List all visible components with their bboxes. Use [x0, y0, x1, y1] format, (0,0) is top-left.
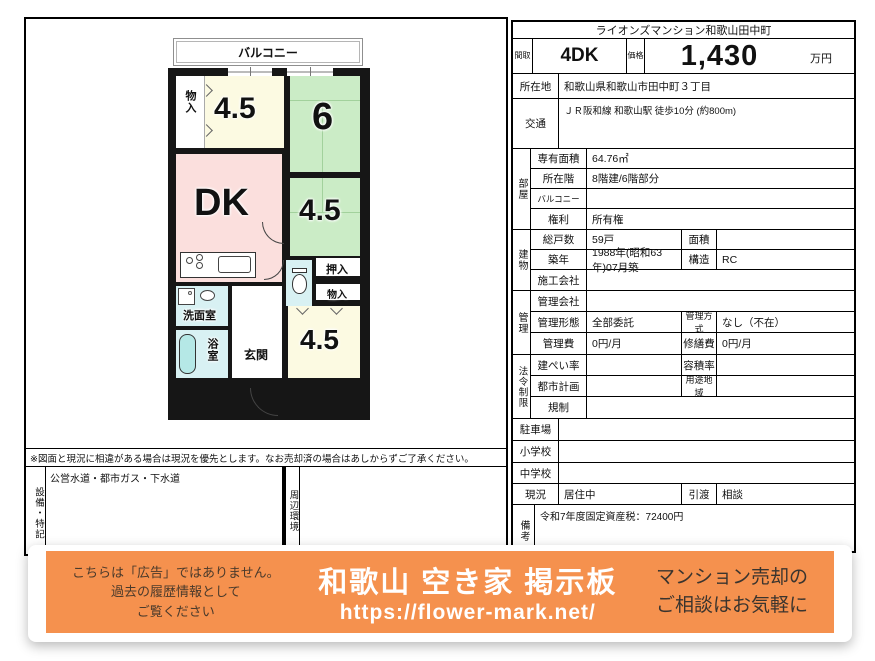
washer-icon: [178, 288, 195, 305]
balcony-row-label: バルコニー: [531, 189, 587, 208]
rights-value: 所有権: [587, 209, 854, 229]
banner-disclaimer: こちらは「広告」ではありません。 過去の履歴情報として ご覧ください: [72, 563, 280, 622]
houshiki-label: 管理方式: [681, 312, 717, 332]
houshiki-value: なし（不在）: [717, 312, 854, 332]
fee-label: 管理費: [531, 333, 587, 354]
room-dk-label: DK: [194, 182, 249, 225]
banner-card: こちらは「広告」ではありません。 過去の履歴情報として ご覧ください 和歌山 空…: [28, 545, 852, 642]
cta-line: マンション売却の: [656, 564, 808, 593]
price-cell: 1,430 万円: [645, 39, 854, 73]
status-row: 現況 居住中 引渡 相談: [513, 484, 854, 505]
legal-section: 法令制限 建ぺい率 容積率 都市計画 用途地域 規制: [513, 355, 854, 419]
toshikeikaku-value: [587, 376, 681, 396]
price-label: 価格: [627, 39, 645, 73]
mgmt-company-value: [587, 291, 854, 311]
built-label: 築年: [531, 250, 587, 269]
management-section-label: 管理: [513, 291, 531, 354]
location-value: 和歌山県和歌山市田中町３丁目: [559, 74, 854, 98]
parking-row: 駐車場: [513, 419, 854, 441]
shuzen-label: 修繕費: [681, 333, 717, 354]
toshikeikaku-label: 都市計画: [531, 376, 587, 396]
yoto-value: [717, 376, 854, 396]
floor-label: 所在階: [531, 169, 587, 188]
area-label: 専有面積: [531, 149, 587, 168]
fee-value: 0円/月: [587, 333, 681, 354]
price-value: 1,430: [681, 40, 759, 73]
menseki-label: 面積: [681, 230, 717, 249]
madori-value: 4DK: [533, 39, 627, 73]
access-label: 交通: [513, 99, 559, 148]
site-title: 和歌山 空き家 掲示板: [318, 559, 617, 601]
units-label: 総戸数: [531, 230, 587, 249]
junior-high-label: 中学校: [513, 463, 559, 483]
hikiwatashi-value: 相談: [717, 484, 854, 504]
parking-value: [559, 419, 854, 440]
stove-icon: [196, 262, 203, 269]
kenpei-label: 建ぺい率: [531, 355, 587, 375]
bathtub-icon: [179, 334, 196, 374]
banner-site: 和歌山 空き家 掲示板 https://flower-mark.net/: [318, 559, 617, 625]
property-details-table: ライオンズマンション和歌山田中町 間取 4DK 価格 1,430 万円 所在地 …: [511, 20, 856, 553]
area-value: 64.76㎡: [587, 149, 854, 168]
keitai-label: 管理形態: [531, 312, 587, 332]
entrance-label: 玄関: [244, 346, 268, 363]
yoseki-value: [717, 355, 854, 375]
banner: こちらは「広告」ではありません。 過去の履歴情報として ご覧ください 和歌山 空…: [46, 551, 834, 633]
note-text: ※図面と現況に相違がある場合は現況を優先とします。なお売却済の場合はあしからずご…: [30, 451, 474, 465]
location-row: 所在地 和歌山県和歌山市田中町３丁目: [513, 74, 854, 99]
sink-icon: [218, 256, 251, 273]
disclaimer-note: ※図面と現況に相違がある場合は現況を優先とします。なお売却済の場合はあしからずご…: [26, 448, 506, 467]
toilet-icon: [292, 274, 307, 294]
room-45-bottom-label: 4.5: [300, 324, 339, 356]
location-label: 所在地: [513, 74, 559, 98]
elementary-value: [559, 441, 854, 462]
price-unit: 万円: [810, 50, 832, 66]
floorplan-panel: バルコニー: [24, 17, 508, 556]
madori-price-row: 間取 4DK 価格 1,430 万円: [513, 39, 854, 74]
storage-mid-label: 物入: [327, 286, 347, 301]
equipment-label: 設備・特記: [26, 467, 46, 554]
yoseki-label: 容積率: [681, 355, 717, 375]
cta-line: ご相談はお気軽に: [656, 592, 808, 621]
elementary-row: 小学校: [513, 441, 854, 463]
kenpei-value: [587, 355, 681, 375]
disclaimer-line: 過去の履歴情報として: [72, 582, 280, 602]
elementary-label: 小学校: [513, 441, 559, 462]
structure-value: RC: [717, 250, 854, 269]
parking-label: 駐車場: [513, 419, 559, 440]
legal-section-label: 法令制限: [513, 355, 531, 418]
room-45-top-label: 4.5: [214, 92, 256, 126]
storage-top-label: 物入: [182, 90, 198, 114]
window-icon: [228, 68, 272, 76]
menseki-value: [717, 230, 854, 249]
madori-label: 間取: [513, 39, 533, 73]
toilet-icon: [292, 268, 307, 273]
balcony-area: バルコニー: [173, 38, 363, 66]
room-45-mid-label: 4.5: [299, 194, 341, 228]
built-value: 1988年(昭和63年)07月築: [587, 250, 681, 269]
room-section: 部屋 専有面積 64.76㎡ 所在階 8階建/6階部分 バルコニー 権利 所有権: [513, 149, 854, 230]
access-row: 交通 ＪＲ阪和線 和歌山駅 徒歩10分 (約800m): [513, 99, 854, 149]
junior-high-value: [559, 463, 854, 483]
surroundings-value: [300, 467, 506, 554]
kisei-value: [587, 397, 854, 418]
hikiwatashi-label: 引渡: [681, 484, 717, 504]
rights-label: 権利: [531, 209, 587, 229]
equipment-value: 公営水道・都市ガス・下水道: [46, 467, 282, 554]
yoto-label: 用途地域: [681, 376, 717, 396]
balcony-label: バルコニー: [238, 44, 298, 61]
genkyo-value: 居住中: [559, 484, 681, 504]
balcony-row-value: [587, 189, 854, 208]
washbasin-icon: [200, 290, 215, 301]
site-url-link[interactable]: https://flower-mark.net/: [318, 601, 617, 625]
room-entrance: [232, 286, 282, 378]
washroom-label: 洗面室: [183, 307, 216, 323]
access-value: ＪＲ阪和線 和歌山駅 徒歩10分 (約800m): [559, 99, 854, 148]
keitai-value: 全部委託: [587, 312, 681, 332]
equipment-table: 設備・特記 公営水道・都市ガス・下水道 周辺環境: [26, 467, 506, 554]
contractor-value: [587, 270, 854, 290]
structure-label: 構造: [681, 250, 717, 269]
kisei-label: 規制: [531, 397, 587, 418]
floor-plan: バルコニー: [166, 36, 374, 428]
stove-icon: [196, 254, 203, 261]
management-section: 管理 管理会社 管理形態 全部委託 管理方式 なし（不在） 管理費 0円/月 修…: [513, 291, 854, 355]
building-section-label: 建物: [513, 230, 531, 290]
floor-value: 8階建/6階部分: [587, 169, 854, 188]
disclaimer-line: こちらは「広告」ではありません。: [72, 563, 280, 583]
mgmt-company-label: 管理会社: [531, 291, 587, 311]
banner-cta: マンション売却の ご相談はお気軽に: [656, 564, 808, 621]
window-icon: [287, 68, 333, 76]
property-title: ライオンズマンション和歌山田中町: [513, 22, 854, 39]
surroundings-label: 周辺環境: [286, 467, 300, 554]
room-6-label: 6: [312, 96, 333, 139]
building-section: 建物 総戸数 59戸 面積 築年 1988年(昭和63年)07月築 構造 RC …: [513, 230, 854, 291]
shuzen-value: 0円/月: [717, 333, 854, 354]
room-section-label: 部屋: [513, 149, 531, 229]
disclaimer-line: ご覧ください: [72, 602, 280, 622]
junior-high-row: 中学校: [513, 463, 854, 484]
stove-icon: [186, 257, 193, 264]
bathroom-label: 浴室: [204, 338, 220, 362]
contractor-label: 施工会社: [531, 270, 587, 290]
oshiire-label: 押入: [326, 261, 348, 277]
genkyo-label: 現況: [513, 484, 559, 504]
